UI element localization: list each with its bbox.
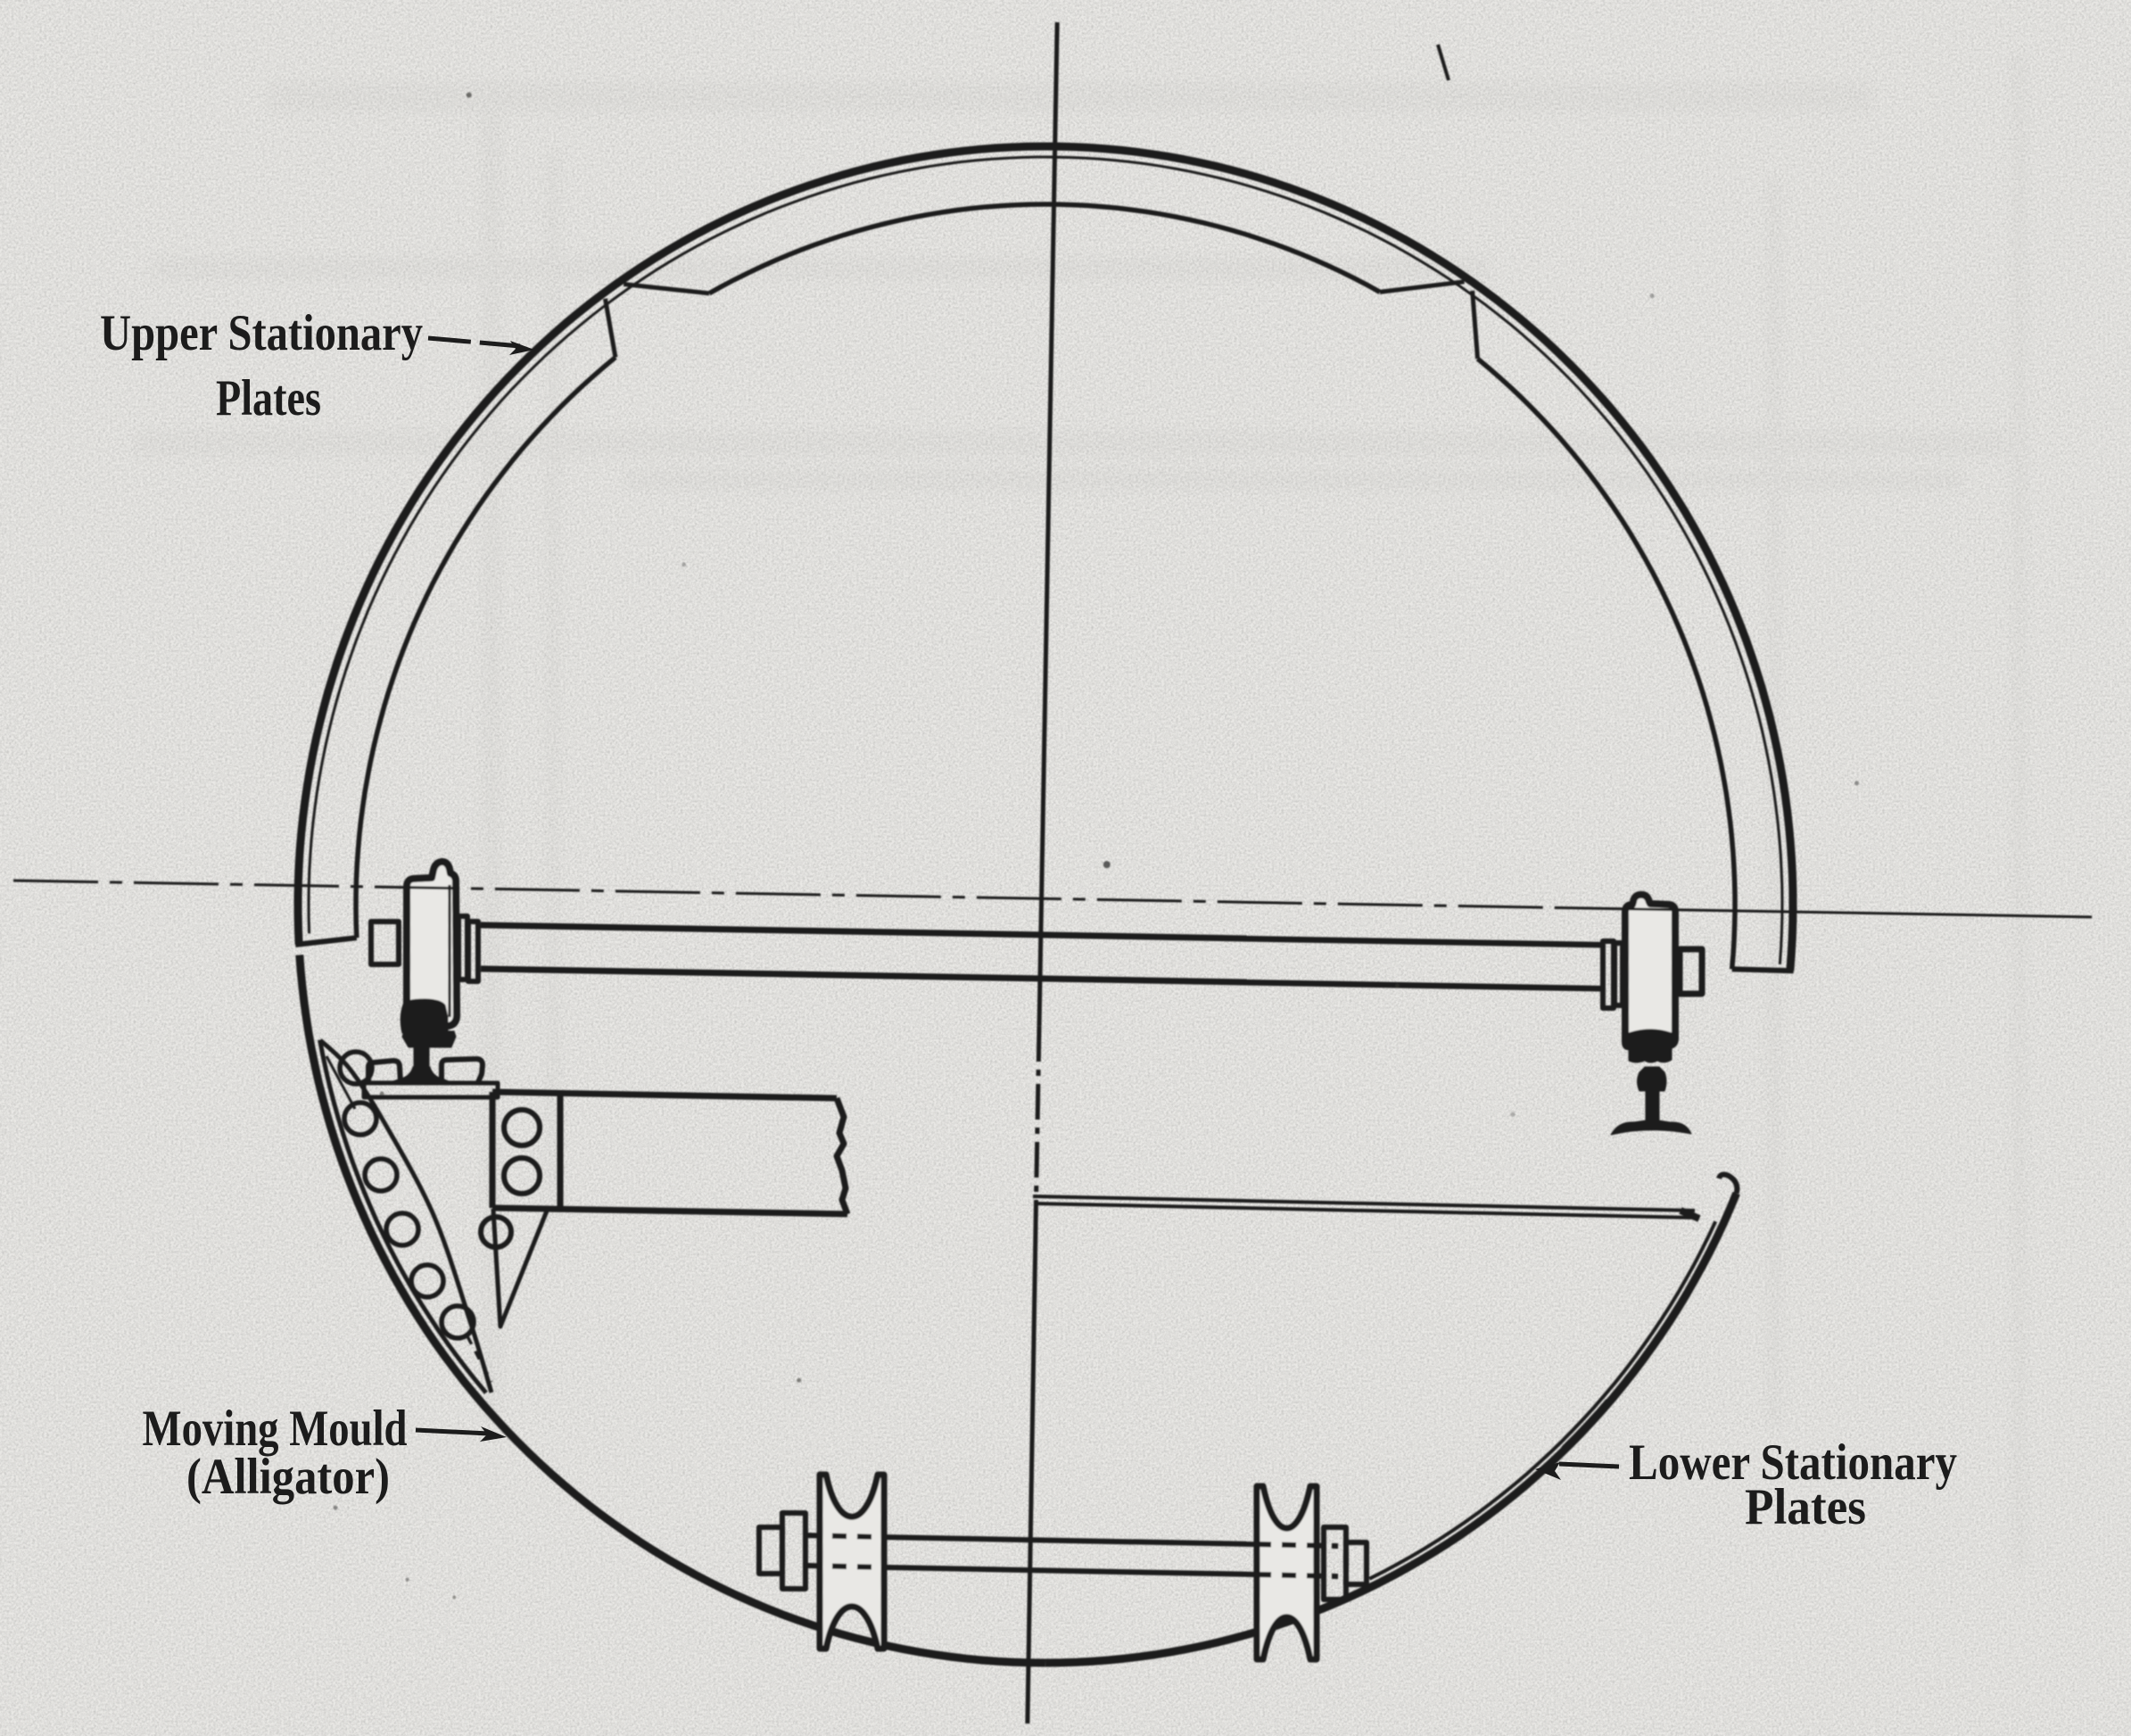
svg-text:Upper Stationary: Upper Stationary xyxy=(100,305,423,361)
svg-text:(Alligator): (Alligator) xyxy=(186,1449,390,1505)
svg-text:Plates: Plates xyxy=(1745,1479,1866,1535)
svg-text:Plates: Plates xyxy=(216,370,321,426)
